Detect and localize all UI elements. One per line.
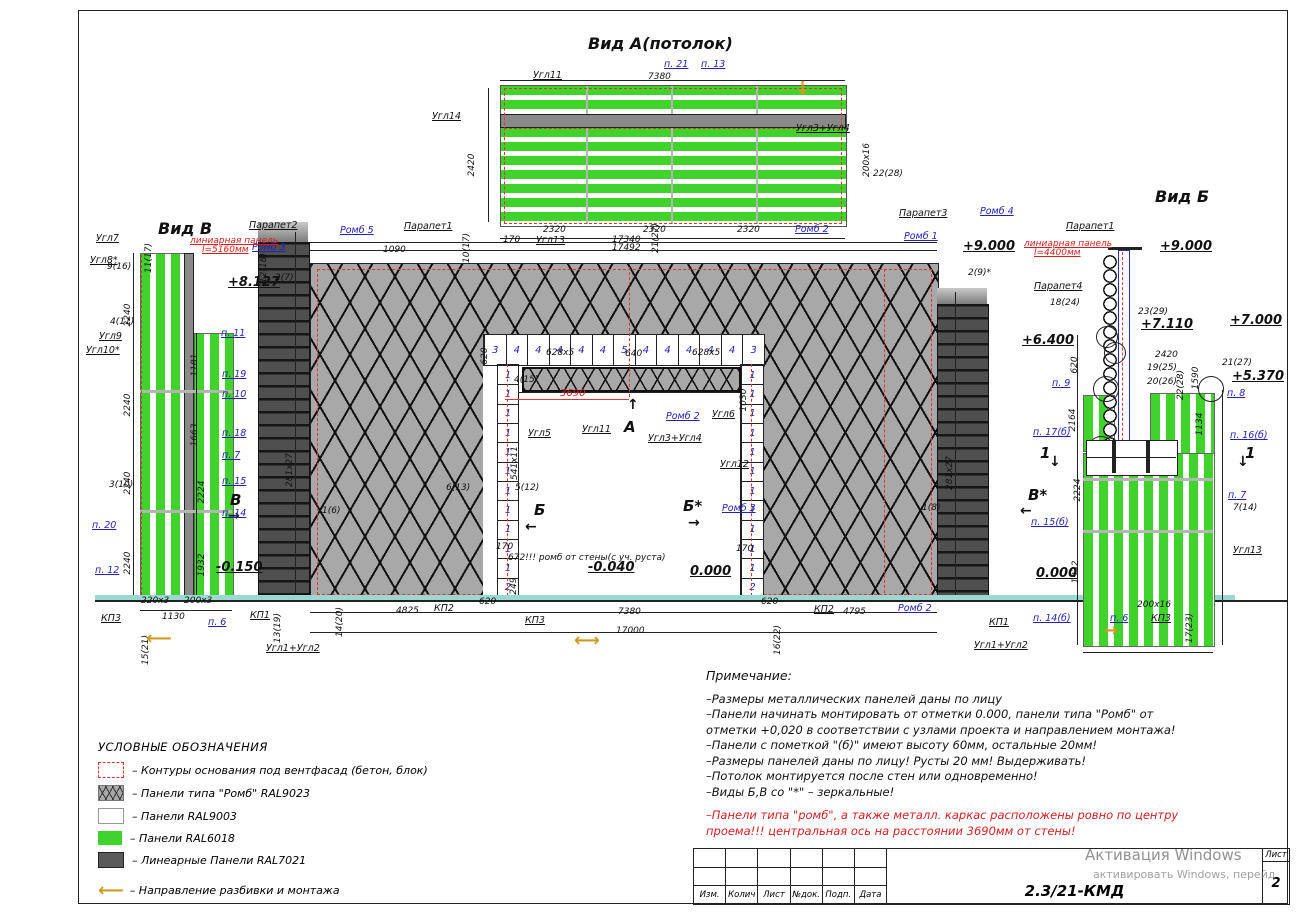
titleblock-column-label: Изм. <box>694 886 725 904</box>
frame-detail <box>1086 440 1178 476</box>
center-axis <box>629 267 630 397</box>
note-line: –Панели с пометкой "(б)" имеют высоту 60… <box>706 738 1266 754</box>
annotation-label: 620 <box>479 598 496 607</box>
annotation-label: 2240 <box>124 552 133 575</box>
annotation-label: +7.110 <box>1141 318 1193 331</box>
note-line: отметки +0,020 в соответствии с узлами п… <box>706 723 1266 739</box>
right-linear-column <box>937 304 989 600</box>
annotation-label: 200x3 <box>184 597 212 606</box>
top-view-contour-line <box>504 128 840 129</box>
notes-block: Примечание: –Размеры металлических панел… <box>706 668 1266 839</box>
annotation-label: 541x11 <box>511 446 520 480</box>
annotation-label: l=4400мм <box>1034 249 1081 258</box>
annotation-label: 4(11) <box>110 318 134 327</box>
annotation-label: 170 <box>503 236 520 245</box>
annotation-label: 628x5 <box>692 349 720 358</box>
annotation-label: 2420 <box>468 154 477 177</box>
right-linear-cap <box>937 288 987 304</box>
node-circle <box>1104 342 1126 364</box>
drawing-sheet: 3444445444443 111111111112 111111111112 … <box>0 0 1300 917</box>
annotation-label: 1134 <box>1196 413 1205 436</box>
panel-cell: 1 <box>742 423 763 442</box>
annotation-label: l=5160мм <box>202 246 249 255</box>
annotation-label: Парапет4 <box>1034 282 1082 292</box>
annotation-label: 0.000 <box>1036 567 1077 580</box>
panel-cell: 1 <box>498 520 518 539</box>
annotation-label: +9.000 <box>963 240 1015 253</box>
direction-arrow-icon: ⟵ <box>98 880 124 901</box>
annotation-label: 9(16) <box>107 263 131 272</box>
base-contour-swatch <box>98 762 124 778</box>
annotation-label: Ромб 3 <box>722 504 756 514</box>
annotation-label: ↓ <box>795 80 810 98</box>
legend-item-direction: ⟵ – Направление разбивки и монтажа <box>98 880 468 901</box>
legend-item-label: – Контуры основания под вентфасад (бетон… <box>132 764 428 777</box>
annotation-label: 17(23) <box>1186 613 1195 643</box>
annotation-label: п. 7 <box>1228 491 1246 501</box>
annotation-label: Угл12 <box>720 460 749 470</box>
annotation-label: -0.150 <box>216 561 263 574</box>
panel-cell: 4 <box>506 335 528 365</box>
annotation-label: 19(25) <box>1147 364 1177 373</box>
annotation-label: 2320 <box>543 226 566 235</box>
panel-cell: 1 <box>742 481 763 500</box>
annotation-label: ← <box>525 520 537 534</box>
panel-cell: 4 <box>592 335 614 365</box>
annotation-label: п. 11 <box>221 329 245 339</box>
note-line-red: –Панели типа "ромб", а также металл. кар… <box>706 808 1266 824</box>
frame-detail-line <box>1086 457 1176 458</box>
contour-v <box>884 269 885 593</box>
right-view-joint <box>1083 478 1213 481</box>
annotation-label: → <box>1103 622 1118 640</box>
notes-red-lines: –Панели типа "ромб", а также металл. кар… <box>706 808 1266 839</box>
contour-col-right <box>751 364 752 596</box>
annotation-label: ↑ <box>627 398 639 412</box>
annotation-label: А <box>624 420 636 435</box>
annotation-label: ← <box>1020 504 1032 518</box>
annotation-label: Угл11 <box>582 425 611 435</box>
axis-dim-3690 <box>505 399 629 400</box>
annotation-label: 672!!! ромб от стены(с уч. руста) <box>508 554 666 563</box>
annotation-label: 2224 <box>1074 479 1083 502</box>
annotation-label: Угл10* <box>86 346 120 356</box>
annotation-label: Угл6 <box>712 410 735 420</box>
annotation-label: ↓ <box>1049 455 1061 469</box>
left-view-stripes-1 <box>140 253 186 602</box>
annotation-label: 13(19) <box>274 613 283 643</box>
legend-item-white: – Панели RAL9003 <box>98 808 468 824</box>
annotation-label: Ромб 2 <box>666 412 700 422</box>
annotation-label: 21(27) <box>1222 359 1252 368</box>
annotation-label: 1130 <box>162 613 185 622</box>
annotation-label: п. 15 <box>222 477 246 487</box>
panel-cell: 4 <box>656 335 678 365</box>
legend-item-linear: – Линеарные Панели RAL7021 <box>98 852 468 868</box>
dim-line <box>488 88 489 222</box>
annotation-label: Угл7 <box>96 234 119 244</box>
annotation-label: 10(17) <box>463 233 472 263</box>
annotation-label: 22(28) <box>873 170 903 179</box>
annotation-label: Парапет1 <box>404 222 452 232</box>
annotation-label: 628x5 <box>546 349 574 358</box>
windows-activation-watermark-2: активировать Windows, перейд <box>1093 868 1275 881</box>
green-swatch <box>98 831 122 845</box>
annotation-label: 1663 <box>191 424 200 447</box>
annotation-label: B <box>230 493 241 508</box>
rhomb-swatch <box>98 785 124 801</box>
legend-item-label: – Панели типа "Ромб" RAL9023 <box>132 787 310 800</box>
annotation-label: ↓ <box>1237 455 1249 469</box>
left-view-contour <box>141 255 142 600</box>
annotation-label: 4825 <box>396 607 419 616</box>
annotation-label: 2(7) <box>275 274 293 283</box>
left-view-joint <box>140 390 232 393</box>
titleblock-column-label: Лист <box>757 886 789 904</box>
annotation-label: 1590 <box>1192 367 1201 390</box>
annotation-label: Ромб 2 <box>795 225 829 235</box>
right-view-joint <box>1083 530 1213 533</box>
annotation-label: 6(13) <box>446 484 470 493</box>
annotation-label: 220x3 <box>141 597 169 606</box>
note-line: –Виды Б,В со "*" – зеркальные! <box>706 785 1266 801</box>
annotation-label: КП3 <box>101 614 121 624</box>
annotation-label: 17492 <box>612 244 641 253</box>
note-line: –Размеры металлических панелей даны по л… <box>706 692 1266 708</box>
annotation-label: 170 <box>496 543 513 552</box>
annotation-label: 249 <box>510 577 519 594</box>
note-line: –Потолок монтируется после стен или одно… <box>706 769 1266 785</box>
annotation-label: Ромб 5 <box>340 226 374 236</box>
annotation-label: Вид Б <box>1155 189 1209 205</box>
annotation-label: 281x27 <box>286 453 295 487</box>
annotation-label: Парапет1 <box>1066 222 1114 232</box>
annotation-label: 620 <box>1071 356 1080 373</box>
annotation-label: 21(27) <box>652 223 661 253</box>
dim-line <box>1083 652 1213 653</box>
panel-cell: 1 <box>498 423 518 442</box>
annotation-label: п. 18 <box>222 429 246 439</box>
annotation-label: Угл11 <box>533 71 562 81</box>
note-line-red: проема!!! центральная ось на расстоянии … <box>706 824 1266 840</box>
annotation-label: п. 13 <box>701 60 725 70</box>
annotation-label: 2224 <box>198 481 207 504</box>
linear-swatch <box>98 852 124 868</box>
windows-activation-watermark: Активация Windows <box>1085 846 1242 864</box>
annotation-label: 4795 <box>843 608 866 617</box>
dim-line <box>133 253 134 600</box>
annotation-label: КП2 <box>434 604 454 614</box>
annotation-label: Б <box>534 503 545 518</box>
annotation-label: п. 14(б) <box>1033 614 1071 624</box>
annotation-label: 22(28) <box>1177 370 1186 400</box>
annotation-label: 640 <box>625 350 642 359</box>
dim-line <box>1222 390 1223 645</box>
panel-cell: 1 <box>742 365 763 384</box>
annotation-label: п. 15(б) <box>1031 518 1069 528</box>
annotation-label: Угл1+Угл2 <box>266 644 320 654</box>
annotation-label: Вид В <box>158 221 212 237</box>
annotation-label: 1090 <box>383 246 406 255</box>
legend-item-label: – Панели RAL9003 <box>132 810 237 823</box>
annotation-label: -0.040 <box>588 561 635 574</box>
annotation-label: п. 19 <box>222 370 246 380</box>
titleblock-column-label: Подп. <box>822 886 854 904</box>
annotation-label: п. 8 <box>1227 389 1245 399</box>
legend-item-label: – Направление разбивки и монтажа <box>130 884 340 897</box>
annotation-label: 281x27 <box>946 456 955 490</box>
titleblock-column-label: Дата <box>854 886 886 904</box>
annotation-label: п. 20 <box>92 521 116 531</box>
panel-cell: 1 <box>498 384 518 403</box>
notes-title: Примечание: <box>706 668 1266 684</box>
annotation-label: 23(29) <box>1138 308 1168 317</box>
titleblock-column-label: №док. <box>790 886 822 904</box>
annotation-label: ⟷ <box>574 632 600 650</box>
annotation-label: → <box>688 516 700 530</box>
annotation-label: 1181 <box>191 354 200 377</box>
top-view-base-contour <box>504 88 842 224</box>
node-circle <box>1198 376 1224 402</box>
note-line: –Размеры панелей даны по лицу! Русты 20 … <box>706 754 1266 770</box>
titleblock-column-label: Колич <box>725 886 757 904</box>
annotation-label: +7.000 <box>1230 314 1282 327</box>
annotation-label: 20(26) <box>1147 378 1177 387</box>
annotation-label: Угл3+Угл4 <box>648 434 702 444</box>
lintel-panel <box>522 367 741 392</box>
panel-cell: 3 <box>742 335 764 365</box>
left-view-joint <box>140 510 232 513</box>
sheet-label: Лист <box>1263 849 1289 862</box>
annotation-label: 170 <box>736 545 753 554</box>
annotation-label: КП3 <box>525 616 545 626</box>
annotation-label: 18(24) <box>1050 299 1080 308</box>
annotation-label: Угл13 <box>1233 546 1262 556</box>
frame-detail-post <box>1112 441 1116 473</box>
annotation-label: 620 <box>481 347 490 364</box>
annotation-label: КП1 <box>989 618 1009 628</box>
legend-item-label: – Линеарные Панели RAL7021 <box>132 854 306 867</box>
annotation-label: 2420 <box>1155 351 1178 360</box>
annotation-label: п. 21 <box>664 60 688 70</box>
dim-line <box>140 610 232 611</box>
right-view-stripes-main <box>1083 453 1215 647</box>
annotation-label: п. 9 <box>1052 379 1070 389</box>
annotation-label: +9.000 <box>1160 240 1212 253</box>
annotation-label: 0.000 <box>690 565 731 578</box>
lintel-support <box>519 392 741 393</box>
annotation-label: 3(10) <box>109 481 133 490</box>
panel-cell: 4 <box>721 335 743 365</box>
annotation-label: 200x16 <box>863 143 872 177</box>
annotation-label: 4(15) <box>514 376 538 385</box>
annotation-label: п. 7 <box>222 451 240 461</box>
annotation-label: 7380 <box>618 608 641 617</box>
annotation-label: Угл1+Угл2 <box>974 641 1028 651</box>
annotation-label: п. 14 <box>222 509 246 519</box>
annotation-label: КП2 <box>814 605 834 615</box>
annotation-label: 620 <box>761 598 778 607</box>
annotation-label: п. 6 <box>208 618 226 628</box>
annotation-label: 2(9)* <box>968 269 991 278</box>
annotation-label: 1(8) <box>922 504 940 513</box>
annotation-label: Угл13 <box>536 236 565 246</box>
annotation-label: 1(6) <box>322 507 340 516</box>
annotation-label: Угл5 <box>528 429 551 439</box>
annotation-label: 2240 <box>124 394 133 417</box>
annotation-label: ⟵ <box>146 630 172 648</box>
frame-detail-post <box>1146 441 1150 473</box>
annotation-label: п. 16(б) <box>1230 431 1268 441</box>
annotation-label: Ромб 1 <box>904 232 938 242</box>
annotation-label: Вид А(потолок) <box>588 36 733 52</box>
annotation-label: B* <box>1028 488 1047 503</box>
annotation-label: Ромб 4 <box>980 207 1014 217</box>
legend-item-rhomb: – Панели типа "Ромб" RAL9023 <box>98 785 468 801</box>
dim-line-281-right <box>955 292 956 600</box>
legend-item-label: – Панели RAL6018 <box>130 832 235 845</box>
annotation-label: п. 10 <box>222 390 246 400</box>
panel-cell: 1 <box>498 404 518 423</box>
annotation-label: Б* <box>683 499 702 514</box>
notes-lines: –Размеры металлических панелей даны по л… <box>706 692 1266 801</box>
panel-cell: 1 <box>742 520 763 539</box>
annotation-label: 1932 <box>198 554 207 577</box>
annotation-label: 14(20) <box>336 607 345 637</box>
dim-line-281-left <box>295 232 296 600</box>
legend: УСЛОВНЫЕ ОБОЗНАЧЕНИЯ – Контуры основания… <box>98 740 468 908</box>
annotation-label: 5(12) <box>515 484 539 493</box>
annotation-label: КП1 <box>250 611 270 621</box>
annotation-label: 3690 <box>560 389 585 399</box>
annotation-label: Угл3+Угл4 <box>796 124 850 134</box>
annotation-label: 1030 <box>740 389 749 412</box>
annotation-label: 16(22) <box>774 625 783 655</box>
panel-cell: 1 <box>498 500 518 519</box>
annotation-label: 17000 <box>616 627 645 636</box>
annotation-label: 2320 <box>737 226 760 235</box>
annotation-label: Парапет2 <box>249 221 297 231</box>
annotation-label: Парапет3 <box>899 209 947 219</box>
annotation-label: Ромб 2 <box>898 604 932 614</box>
annotation-label: Угл14 <box>432 112 461 122</box>
note-line: –Панели начинать монтировать от отметки … <box>706 707 1266 723</box>
panel-cell: 1 <box>742 558 763 577</box>
legend-item-green: – Панели RAL6018 <box>98 831 468 845</box>
annotation-label: п. 12 <box>95 566 119 576</box>
legend-title: УСЛОВНЫЕ ОБОЗНАЧЕНИЯ <box>98 740 468 754</box>
annotation-label: +8.127 <box>228 276 280 289</box>
node-circle <box>1093 376 1119 402</box>
legend-item-base-contour: – Контуры основания под вентфасад (бетон… <box>98 762 468 778</box>
title-block-table: Изм.КоличЛист№док.Подп.Дата <box>694 849 887 904</box>
panel-row-above-lintel: 3444445444443 <box>483 334 765 366</box>
annotation-label: 200x16 <box>1137 601 1171 610</box>
left-linear-column <box>258 242 310 600</box>
annotation-label: п. 17(б) <box>1033 428 1071 438</box>
annotation-label: 7(14) <box>1233 504 1257 513</box>
annotation-label: +5.370 <box>1232 370 1284 383</box>
white-swatch <box>98 808 124 824</box>
annotation-label: +6.400 <box>1022 334 1074 347</box>
annotation-label: КП3 <box>1151 614 1171 624</box>
annotation-label: 12(18) <box>260 253 269 283</box>
annotation-label: 11(17) <box>145 243 154 273</box>
annotation-label: Угл9 <box>99 332 122 342</box>
parapet-cap <box>1108 247 1142 250</box>
annotation-label: 7380 <box>648 73 671 82</box>
